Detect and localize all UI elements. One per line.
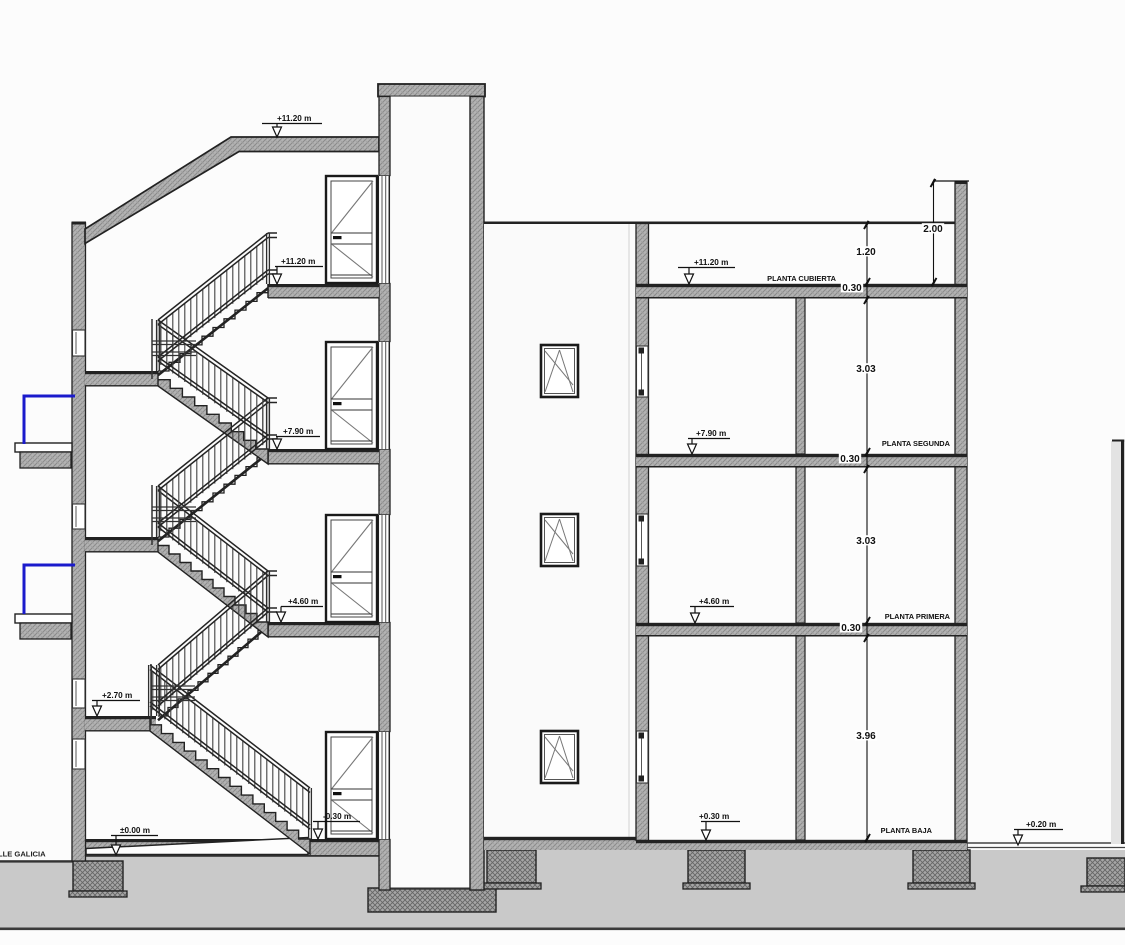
svg-text:+2.70 m: +2.70 m	[102, 691, 132, 700]
svg-text:+7.90 m: +7.90 m	[283, 427, 313, 436]
svg-text:PLANTA BAJA: PLANTA BAJA	[881, 826, 933, 835]
svg-text:3.96: 3.96	[856, 731, 876, 742]
svg-text:-0.30 m: -0.30 m	[323, 812, 351, 821]
svg-text:+11.20 m: +11.20 m	[281, 257, 315, 266]
svg-text:PLANTA SEGUNDA: PLANTA SEGUNDA	[882, 439, 951, 448]
svg-text:PLANTA PRIMERA: PLANTA PRIMERA	[885, 612, 951, 621]
svg-text:0.30: 0.30	[841, 623, 861, 634]
svg-text:+11.20 m: +11.20 m	[277, 114, 311, 123]
svg-text:+4.60 m: +4.60 m	[699, 597, 729, 606]
svg-text:+7.90 m: +7.90 m	[696, 429, 726, 438]
svg-text:3.03: 3.03	[856, 536, 876, 547]
svg-text:+0.30 m: +0.30 m	[699, 812, 729, 821]
svg-text:1.20: 1.20	[856, 247, 876, 258]
svg-text:±0.00 m: ±0.00 m	[120, 826, 150, 835]
svg-text:0.30: 0.30	[842, 283, 862, 294]
svg-text:2.00: 2.00	[923, 224, 943, 235]
svg-text:+4.60 m: +4.60 m	[288, 597, 318, 606]
svg-text:CALLE GALICIA: CALLE GALICIA	[0, 850, 46, 859]
svg-text:+11.20 m: +11.20 m	[694, 258, 728, 267]
svg-text:3.03: 3.03	[856, 364, 876, 375]
svg-text:+0.20 m: +0.20 m	[1026, 820, 1056, 829]
svg-text:0.30: 0.30	[840, 454, 860, 465]
svg-text:PLANTA CUBIERTA: PLANTA CUBIERTA	[767, 274, 836, 283]
